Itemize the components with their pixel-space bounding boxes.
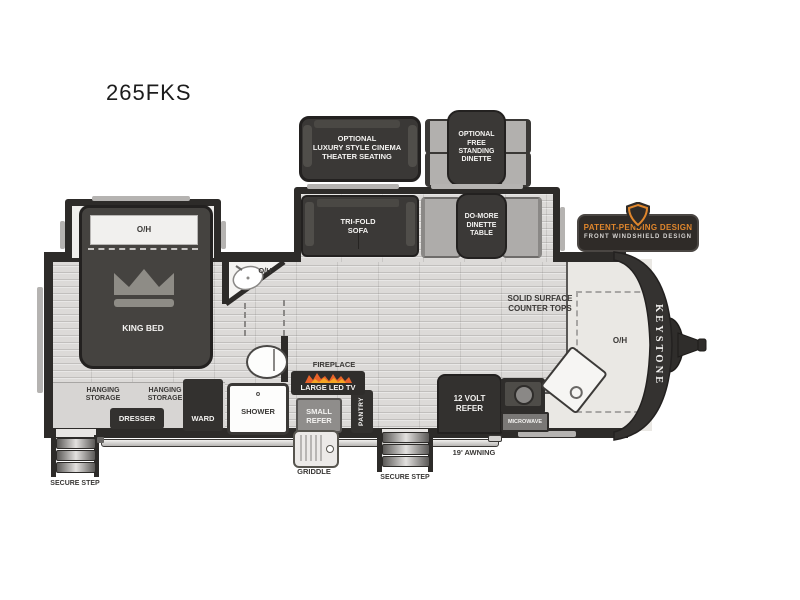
twelve-volt-refer-label: 12 VOLT REFER [454,394,486,413]
shower: o SHOWER [227,383,289,435]
dinette-table: DO-MORE DINETTE TABLE [456,193,507,259]
bathroom-overhead-label: O/H [250,266,280,275]
wall-left [44,252,53,438]
patent-badge-line2: FRONT WINDSHIELD DESIGN [579,234,697,240]
pantry-label: PANTRY [351,390,373,433]
fireplace-tv-unit: LARGE LED TV [291,371,365,395]
sofa-arm-left [305,202,314,246]
dinette-bench [421,197,461,258]
twelve-volt-refer: 12 VOLT REFER [437,374,502,434]
page-title: 265FKS [106,80,246,106]
dresser-label: DRESSER [119,414,155,423]
griddle [293,430,339,468]
crown-icon [112,263,176,309]
counter-tops-label: SOLID SURFACE COUNTER TOPS [492,294,588,313]
king-bed-label: KING BED [96,323,190,333]
trifold-sofa: TRI-FOLD SOFA [301,195,419,257]
bed-slide-window-top [92,196,190,201]
tv-label: LARGE LED TV [291,383,365,392]
bed-overhead-cabinet: O/H [90,215,198,245]
bed-slide-window-right [221,221,226,249]
griddle-label: GRIDDLE [289,467,339,476]
sofa-slide-window-right [560,207,565,251]
secure-step-right-label: SECURE STEP [372,474,438,482]
floorplan-canvas: 265FKS OPTIONAL LUXURY STYLE CINEMA THEA… [0,0,800,600]
dinette-bench [502,197,542,258]
optional-cinema-seating: OPTIONAL LUXURY STYLE CINEMA THEATER SEA… [299,116,421,182]
sofa-slide-window-top2 [431,184,523,189]
step-tread [382,456,430,467]
trifold-sofa-label: TRI-FOLD SOFA [317,209,399,243]
awning-label: 19' AWNING [443,448,505,457]
hanging-storage-label-1: HANGING STORAGE [79,387,127,404]
bed-head-divider [88,248,198,250]
awning-end-right [488,435,502,442]
shower-label: SHOWER [230,407,286,416]
step-tread [56,462,96,473]
pantry: PANTRY [351,390,373,433]
toilet [246,345,288,379]
optional-dinette-label: OPTIONAL FREE STANDING DINETTE [458,131,494,165]
faucet-icon [567,383,585,401]
sofa-arm-right [406,202,415,246]
range-cooktop [501,378,545,414]
dresser: DRESSER [110,408,164,429]
awning-end-left [97,437,104,443]
wardrobe: WARD [183,379,223,431]
secure-step-left-label: SECURE STEP [38,480,112,488]
sofa-backrest [317,199,399,207]
step-tread [382,432,430,443]
dinette-table-label: DO-MORE DINETTE TABLE [465,213,499,238]
bathroom-door-swing [283,300,285,336]
shower-handle: o [230,391,286,399]
toilet-tank-line [273,349,275,371]
bed-overhead-label: O/H [137,225,151,235]
fireplace-label: FIREPLACE [303,360,365,369]
microwave: MICROWAVE [501,412,549,432]
optional-dinette-table: OPTIONAL FREE STANDING DINETTE [447,110,506,186]
cinema-armrest-right [408,125,417,167]
small-refer-label: SMALL REFER [306,407,332,425]
burner-icon [514,385,534,405]
step-tread [382,444,430,455]
griddle-knob [326,445,334,453]
king-bed: O/H KING BED [79,205,213,369]
wall-top-middle [208,252,308,262]
shield-icon [626,202,650,228]
microwave-label: MICROWAVE [508,419,542,426]
hanging-storage-label-2: HANGING STORAGE [141,387,189,404]
step-tread [56,438,96,449]
griddle-surface [300,435,324,461]
sofa-slide-window-top1 [307,184,399,189]
hitch-tip [698,339,706,351]
rear-window [37,287,43,393]
hitch-cone [678,333,700,357]
entry-door-left [56,429,96,437]
bed-slide-window-left [60,221,65,249]
step-tread [56,450,96,461]
cinema-label: OPTIONAL LUXURY STYLE CINEMA THEATER SEA… [306,127,408,167]
bathroom-door-swing [244,303,246,336]
wardrobe-label: WARD [192,414,215,423]
bathroom-wall-left [222,258,229,304]
flames-icon [303,372,353,383]
brand-logo: KEYSTONE [644,297,664,393]
small-refer: SMALL REFER [296,398,342,433]
